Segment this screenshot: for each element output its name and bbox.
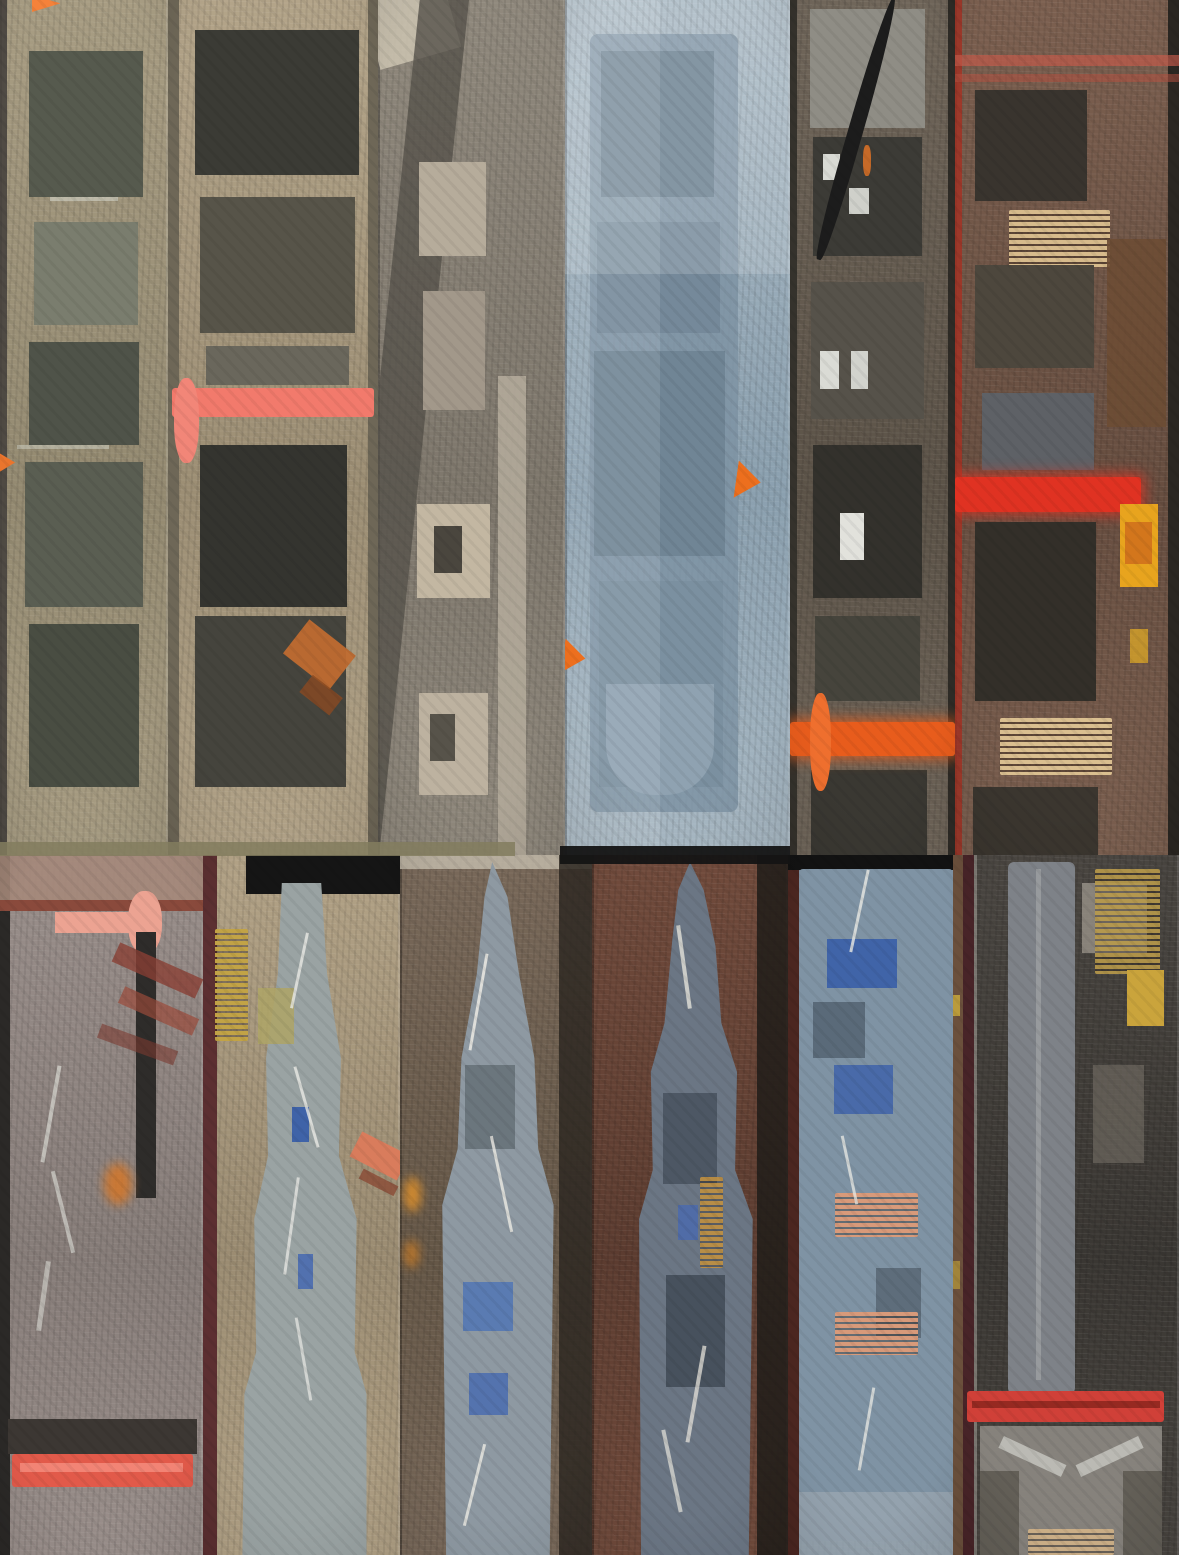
module-hole — [430, 714, 454, 761]
hull-highlight — [1036, 869, 1040, 1380]
yellow-bit — [953, 995, 959, 1016]
crane-trolley — [174, 378, 199, 464]
deck-panel-tan — [1000, 718, 1112, 774]
module-block — [200, 445, 347, 607]
module-block — [815, 616, 921, 702]
blue-equipment — [298, 1254, 314, 1289]
panel-top-2-salmon-crane — [168, 0, 378, 855]
red-lattice — [955, 55, 1179, 66]
dock-edge-maroon — [963, 855, 974, 1555]
module-block — [200, 197, 355, 334]
module-block — [34, 222, 138, 325]
dock-edge-red — [788, 855, 799, 1555]
blue-equipment — [463, 1282, 513, 1331]
module-block — [423, 291, 485, 411]
red-lattice — [955, 74, 1179, 83]
dark-band — [8, 1419, 197, 1454]
deck-panel-tan — [1009, 210, 1110, 266]
pipe-line — [40, 1065, 61, 1162]
module-block — [25, 462, 143, 607]
pipe-line — [51, 1171, 75, 1253]
quay-strip — [498, 376, 526, 855]
module-block — [29, 624, 140, 786]
haze-overlay — [565, 0, 660, 855]
work-light-orange — [104, 1163, 132, 1205]
panel-top-3-grainy-blocks — [378, 0, 565, 855]
deck-patch-dark — [666, 1275, 725, 1387]
yellow-crane — [1095, 869, 1160, 974]
work-light-orange — [404, 1177, 421, 1212]
crane-arm-salmon — [349, 1131, 400, 1180]
blue-equipment — [469, 1373, 507, 1415]
quay-wall-top — [0, 855, 203, 904]
yellow-materials — [215, 929, 248, 1041]
window-white — [820, 351, 840, 389]
orange-arrow-marker — [734, 460, 764, 501]
module-block — [29, 51, 143, 196]
work-light-orange — [404, 1240, 419, 1268]
gantry-beam-salmon — [172, 388, 374, 417]
window-white — [840, 513, 865, 560]
deck-bottom-light — [799, 1492, 953, 1555]
module-block — [29, 342, 140, 445]
crane-trolley — [810, 693, 831, 791]
pipe-line — [17, 445, 109, 449]
debris-gray — [1093, 1065, 1145, 1163]
orange-equipment — [863, 145, 871, 176]
panel-top-6-red-glow-beam — [955, 0, 1179, 855]
orange-inner — [1125, 522, 1152, 565]
module-block — [206, 346, 349, 384]
shadow-band-right — [559, 855, 592, 1555]
blue-equipment — [834, 1065, 894, 1114]
deck-panel-salmon — [835, 1312, 917, 1355]
dock-edge-left — [0, 0, 7, 855]
deck-shadow — [1123, 1471, 1162, 1555]
module-block — [975, 90, 1087, 201]
deck-patch-dark — [813, 1002, 866, 1058]
panel-bottom-4-flight-deck — [592, 855, 788, 1555]
panel-top-1-drydock-modules — [0, 0, 168, 855]
window-white — [851, 351, 868, 389]
yellow-bit — [1130, 629, 1148, 663]
module-block — [811, 770, 927, 856]
window-white — [849, 188, 869, 214]
yellow-box — [1127, 970, 1164, 1026]
dock-edge-right — [1168, 0, 1179, 855]
crane-rail-red — [955, 0, 962, 855]
module-block — [975, 265, 1094, 368]
orange-arrow-marker — [32, 0, 61, 12]
blue-equipment — [678, 1205, 698, 1240]
beam-highlight — [20, 1463, 182, 1473]
panel-bottom-1-dock-apron — [0, 855, 203, 1555]
module-block — [419, 162, 486, 256]
yellow-bit — [953, 1261, 959, 1289]
deck-patch-olive — [258, 988, 293, 1044]
deck-shadow — [980, 1471, 1019, 1555]
blue-equipment — [827, 939, 897, 988]
shadow-band-top — [246, 855, 400, 894]
deck-panel-tan — [1028, 1529, 1114, 1555]
deck-patch-dark — [663, 1093, 718, 1184]
module-block — [195, 30, 359, 175]
dock-strip-right — [953, 855, 964, 1555]
module-block — [975, 522, 1096, 702]
panel-top-5-orange-beam — [790, 0, 955, 855]
panel-bottom-2-hull-bow-up — [203, 855, 400, 1555]
panel-bottom-6-bow-red-beam — [963, 855, 1179, 1555]
gantry-beam-red-glow — [955, 477, 1141, 512]
rail-beam — [0, 900, 203, 911]
pipe-line — [36, 1261, 51, 1331]
module-block — [813, 445, 922, 599]
panel-top-4-haze-blue-arrows — [565, 0, 790, 855]
beam-shadow-line — [972, 1401, 1160, 1408]
deck-panel-salmon — [835, 1193, 917, 1237]
dock-wall-right — [368, 0, 379, 855]
shadow-band-right — [757, 855, 788, 1555]
module-block — [973, 787, 1098, 855]
collage-stage — [0, 0, 1179, 1555]
panel-bottom-5-deck-panels — [788, 855, 963, 1555]
panel-bottom-3-hull-outfitting — [400, 855, 592, 1555]
module-block — [982, 393, 1094, 470]
yellow-materials — [700, 1177, 724, 1268]
seam-light — [974, 855, 977, 1555]
module-hole — [434, 526, 462, 573]
pipe-line — [50, 197, 117, 201]
hull-strip — [1008, 862, 1075, 1394]
water-patch — [1107, 239, 1165, 427]
